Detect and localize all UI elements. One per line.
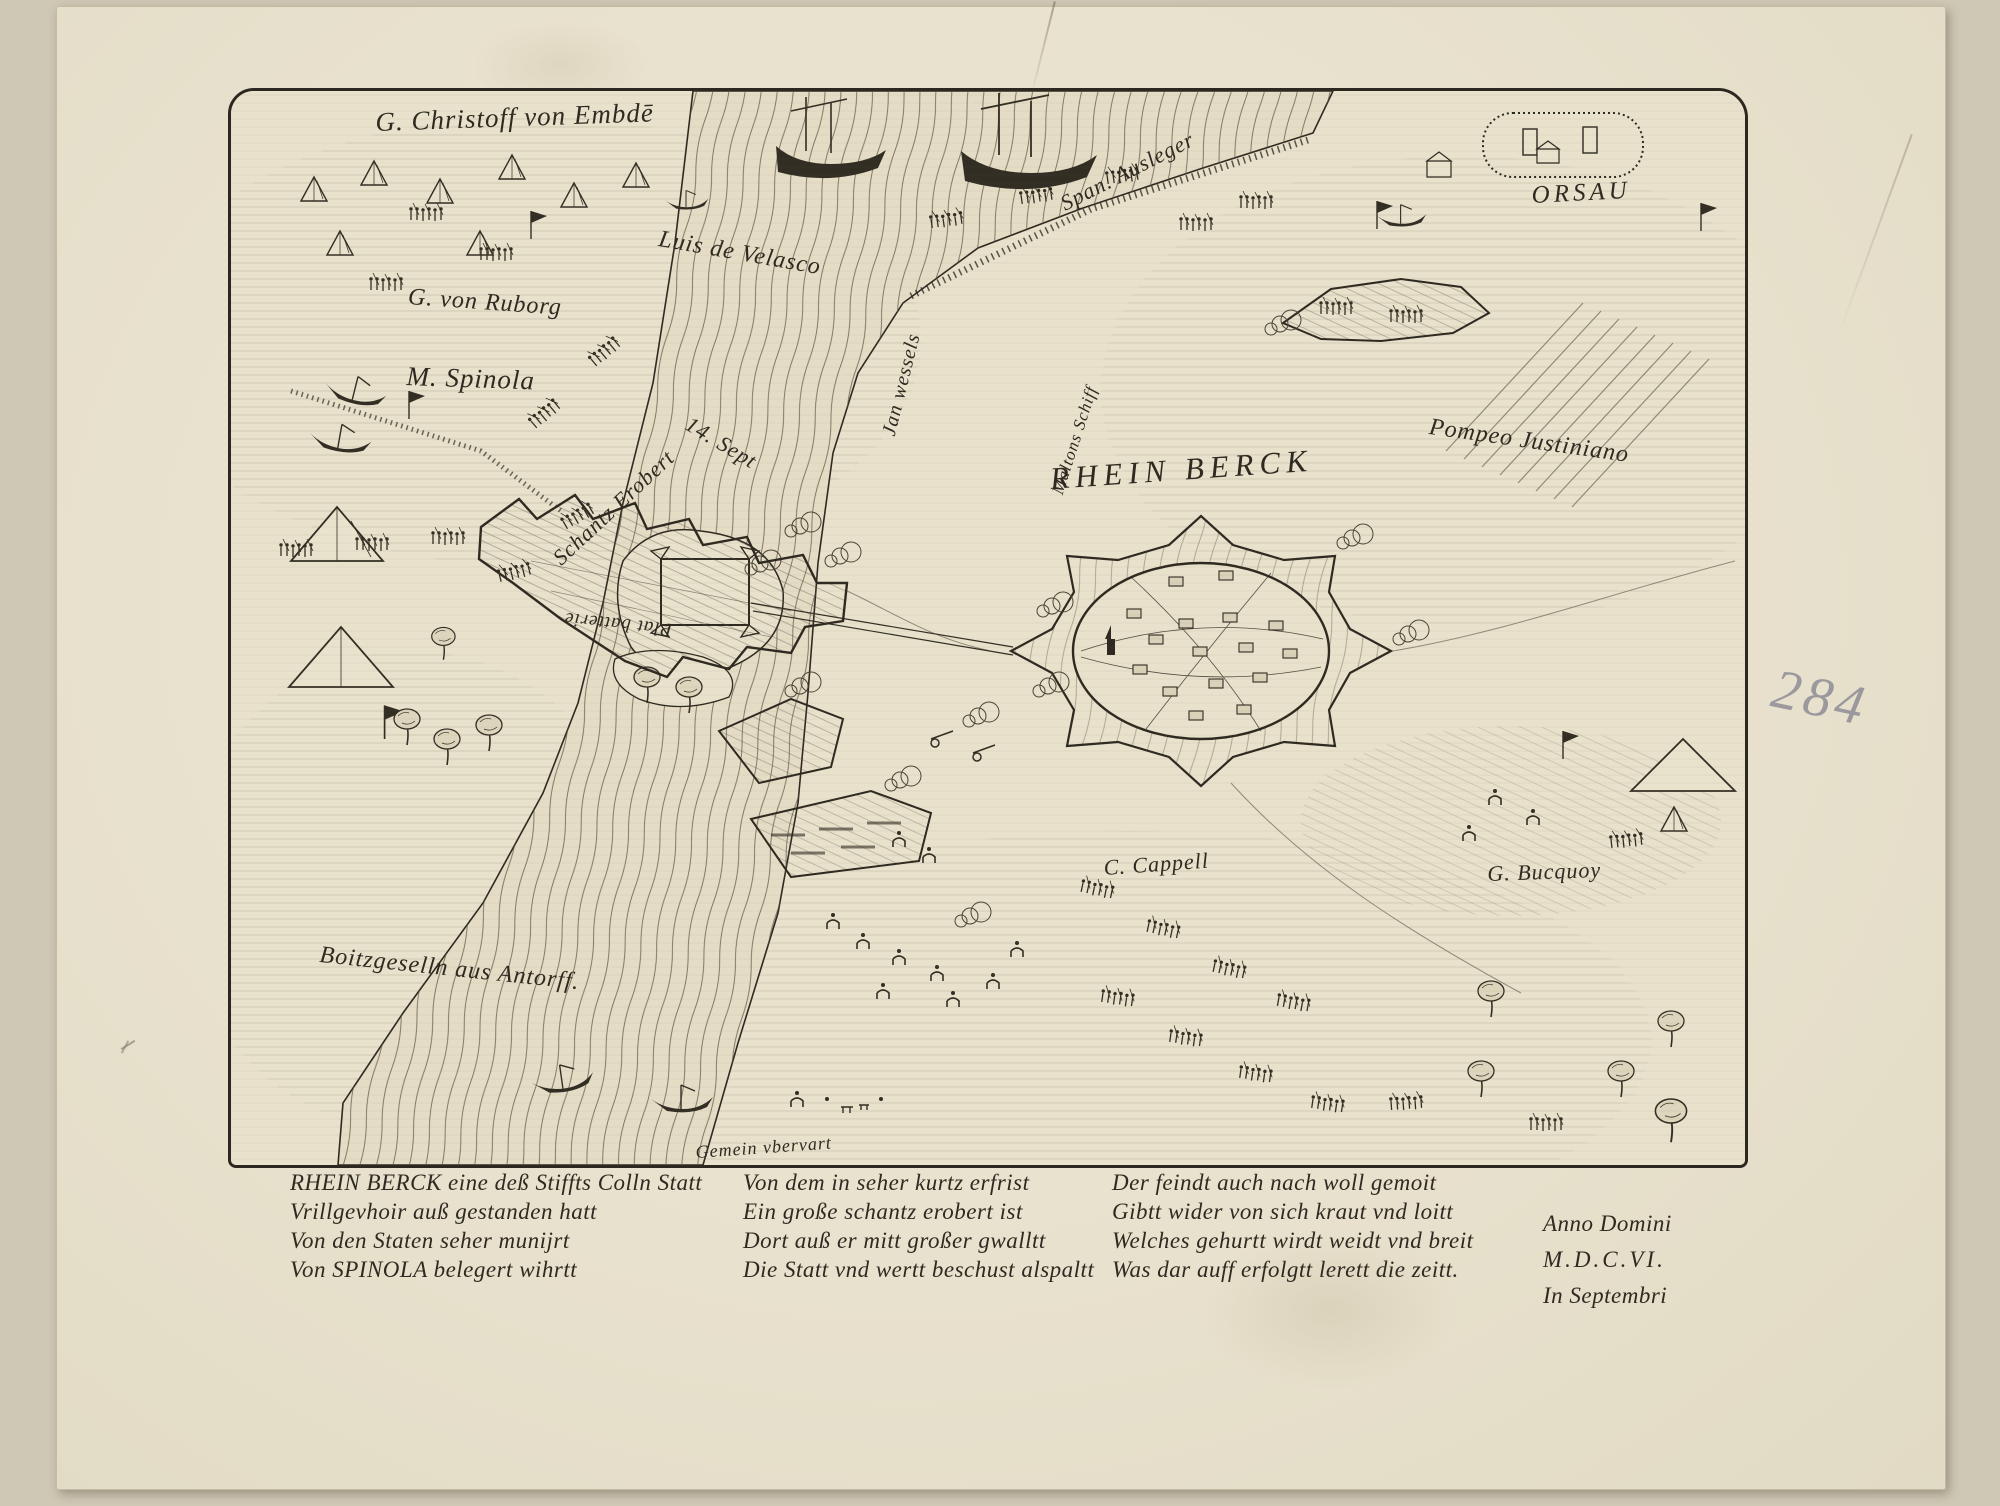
caption-line: Dort auß er mitt großer gwalltt: [743, 1226, 1094, 1255]
caption-line: Von SPINOLA belegert wihrtt: [290, 1255, 702, 1284]
engraved-map-scene: [231, 91, 1745, 1165]
caption-column-date: Anno Domini M.D.C.VI. In Septembri: [1543, 1206, 1672, 1314]
caption-line: Welches gehurtt wirdt weidt vnd breit: [1112, 1226, 1474, 1255]
caption-line: Von den Staten seher munijrt: [290, 1226, 702, 1255]
caption-block: RHEIN BERCK eine deß Stiffts Colln Statt…: [228, 1168, 1742, 1328]
caption-line: Vrillgevhoir auß gestanden hatt: [290, 1197, 702, 1226]
caption-anno-domini: Anno Domini: [1543, 1206, 1672, 1242]
caption-line: Der feindt auch nach woll gemoit: [1112, 1168, 1474, 1197]
scanned-print: G. Christoff von Embdē Span. Ausleger OR…: [0, 0, 2000, 1506]
caption-year-roman: M.D.C.VI.: [1543, 1242, 1672, 1278]
caption-column-3: Der feindt auch nach woll gemoit Gibtt w…: [1112, 1168, 1474, 1284]
label-bucquoy: G. Bucquoy: [1487, 859, 1602, 885]
engraving-map-frame: G. Christoff von Embdē Span. Ausleger OR…: [228, 88, 1748, 1168]
label-orsau: ORSAU: [1531, 178, 1631, 208]
caption-column-1: RHEIN BERCK eine deß Stiffts Colln Statt…: [290, 1168, 702, 1284]
caption-line: Was dar auff erfolgtt lerett die zeitt.: [1112, 1255, 1474, 1284]
caption-line: Von dem in seher kurtz erfrist: [743, 1168, 1094, 1197]
caption-line: Gibtt wider von sich kraut vnd loitt: [1112, 1197, 1474, 1226]
engraving-texture-overlay: [231, 91, 1745, 1165]
caption-line: Ein große schantz erobert ist: [743, 1197, 1094, 1226]
caption-column-2: Von dem in seher kurtz erfrist Ein große…: [743, 1168, 1094, 1284]
caption-line: RHEIN BERCK eine deß Stiffts Colln Statt: [290, 1168, 702, 1197]
label-spinola: M. Spinola: [406, 363, 535, 394]
caption-month: In Septembri: [1543, 1278, 1672, 1314]
caption-line: Die Statt vnd wertt beschust alspaltt: [743, 1255, 1094, 1284]
